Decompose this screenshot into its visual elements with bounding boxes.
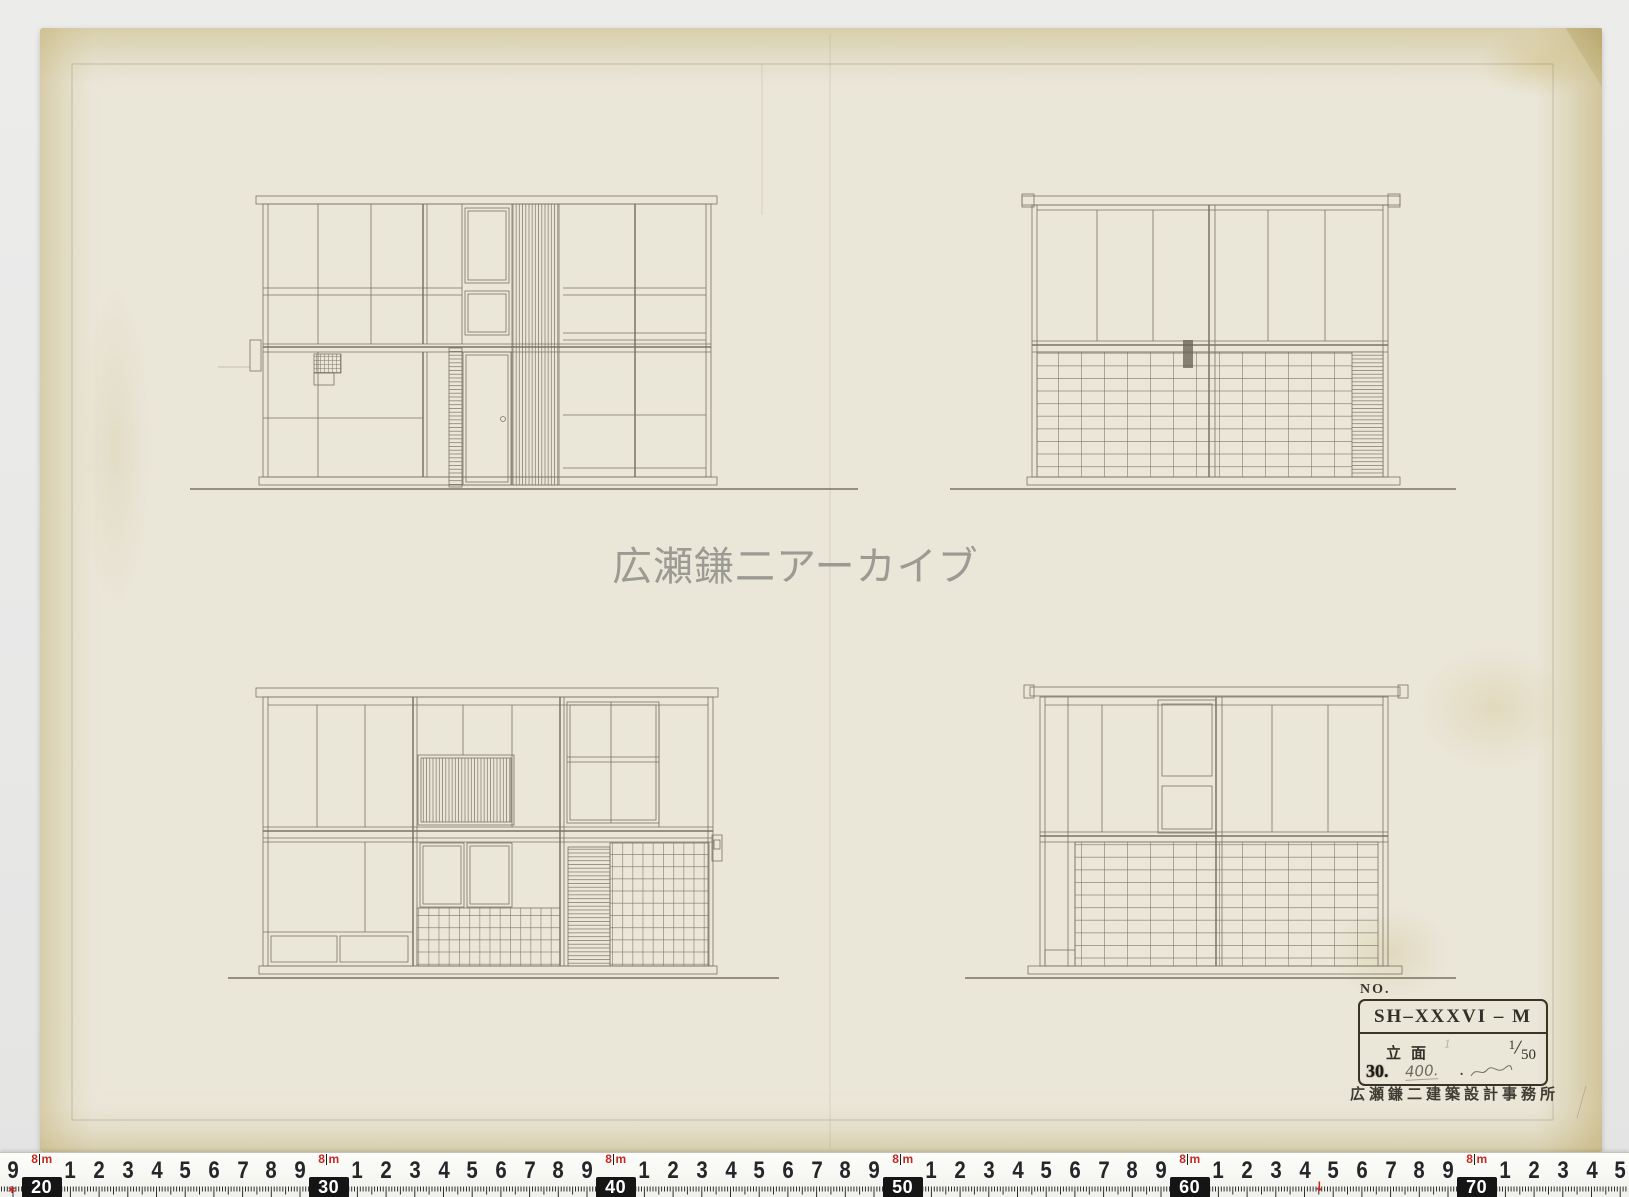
ruler-decade-number: 30 [309, 1177, 349, 1197]
ruler-digit: 6 [779, 1158, 796, 1184]
ruler-digit: 7 [234, 1158, 251, 1184]
ruler-digit: 2 [1239, 1158, 1256, 1184]
ruler-digit: 5 [464, 1158, 481, 1184]
ruler-digit: 4 [435, 1158, 452, 1184]
drawing-type-label: 立面 [1386, 1042, 1436, 1063]
ruler-arrow-marker: ↓ [1314, 1180, 1325, 1195]
ruler-ticks [0, 1186, 1629, 1197]
meter-label: 8m [596, 1153, 636, 1165]
pencil-mark: 1 [1444, 1036, 1451, 1052]
meter-label: 8m [1170, 1153, 1210, 1165]
ruler-digit: 3 [980, 1158, 997, 1184]
elevation-bottom-right [965, 685, 1456, 978]
scale-denominator: 50 [1521, 1047, 1536, 1063]
ruler-digit: 2 [378, 1158, 395, 1184]
ruler-digit: 4 [722, 1158, 739, 1184]
ruler-digit: 9 [292, 1158, 309, 1184]
ruler-digit: 2 [91, 1158, 108, 1184]
tile-wall [417, 908, 560, 966]
page-background: 広瀬鎌二アーカイブ NO. SH–XXXVI – M 立面 1 1/50 30.… [0, 0, 1629, 1197]
tile-wall [1075, 842, 1378, 966]
louver-panel [1352, 352, 1383, 477]
ruler-decade-30: 8m30 [309, 1153, 349, 1197]
ruler-digit: 9 [5, 1158, 22, 1184]
ruler-digit: 3 [1554, 1158, 1571, 1184]
ruler-digit: 9 [866, 1158, 883, 1184]
ruler-digit: 3 [119, 1158, 136, 1184]
ruler-digit: 3 [693, 1158, 710, 1184]
title-block-bottom-row: 30. 400. . [1366, 1062, 1542, 1080]
ruler-digit: 9 [1153, 1158, 1170, 1184]
ruler-decade-60: 8m60 [1170, 1153, 1210, 1197]
ruler-decade-number: 60 [1170, 1177, 1210, 1197]
title-block-no-label: NO. [1360, 982, 1391, 998]
title-block: SH–XXXVI – M 立面 1 1/50 30. 400. . [1358, 999, 1548, 1086]
ruler-digit: 1 [636, 1158, 653, 1184]
tape-ruler: 98m201234567898m301234567898m40123456789… [0, 1152, 1629, 1197]
ladder-strip [449, 348, 462, 487]
ruler-digit: 1 [1210, 1158, 1227, 1184]
door-knob [501, 417, 506, 422]
meter-label: 8m [1457, 1153, 1497, 1165]
ruler-decade-number: 20 [22, 1177, 62, 1197]
ruler-digit: 4 [1009, 1158, 1026, 1184]
ruler-digit: 8 [550, 1158, 567, 1184]
ruler-digit: 5 [1038, 1158, 1055, 1184]
louver-column [512, 204, 559, 485]
ruler-digit: 6 [1353, 1158, 1370, 1184]
ruler-decade-40: 8m40 [596, 1153, 636, 1197]
ruler-decade-number: 70 [1457, 1177, 1497, 1197]
ruler-decade-number: 50 [883, 1177, 923, 1197]
ruler-digit: 8 [1124, 1158, 1141, 1184]
ruler-decade-number: 40 [596, 1177, 636, 1197]
tile-wall [610, 843, 709, 966]
ruler-digit: 1 [923, 1158, 940, 1184]
ruler-digit: 2 [665, 1158, 682, 1184]
ruler-decade-20: 8m20 [22, 1153, 62, 1197]
scale-fraction: 1/50 [1509, 1036, 1536, 1061]
ruler-decade-50: 8m50 [883, 1153, 923, 1197]
stair-louver [568, 847, 610, 966]
handwritten-note: 400. [1404, 1062, 1438, 1081]
flue-block [1183, 340, 1193, 368]
ruler-digit: 8 [1411, 1158, 1428, 1184]
stacked-window [1158, 700, 1216, 833]
title-block-row: 立面 1 1/50 30. 400. . [1360, 1034, 1546, 1080]
ruler-digit: 5 [177, 1158, 194, 1184]
meter-label: 8m [883, 1153, 923, 1165]
archive-watermark: 広瀬鎌二アーカイブ [612, 542, 1032, 592]
meter-label: 8m [22, 1153, 62, 1165]
ruler-digit: 2 [1526, 1158, 1543, 1184]
ruler-digit: 5 [1612, 1158, 1629, 1184]
ruler-start-marker: * [8, 1183, 16, 1197]
ruler-digit: 6 [1066, 1158, 1083, 1184]
ruler-digit: 4 [1583, 1158, 1600, 1184]
ruler-digit: 8 [263, 1158, 280, 1184]
ruler-digit: 1 [349, 1158, 366, 1184]
meter-label: 8m [309, 1153, 349, 1165]
handwritten-scribble [1469, 1063, 1513, 1079]
ruler-digit: 1 [1497, 1158, 1514, 1184]
louver-window [421, 758, 511, 822]
ruler-digit: 6 [205, 1158, 222, 1184]
ruler-digit: 7 [1382, 1158, 1399, 1184]
ruler-digit: 7 [1095, 1158, 1112, 1184]
ruler-digit: 5 [1325, 1158, 1342, 1184]
vent-grille [314, 354, 341, 373]
elevation-top-right [950, 194, 1456, 489]
ruler-digit: 3 [1267, 1158, 1284, 1184]
ruler-digit: 2 [952, 1158, 969, 1184]
ruler-digit: 8 [837, 1158, 854, 1184]
ruler-digit: 6 [492, 1158, 509, 1184]
ruler-digit: 7 [521, 1158, 538, 1184]
office-stamp: 広瀬鎌二建築設計事務所 [1350, 1083, 1565, 1104]
elevation-bottom-left [228, 688, 779, 978]
ruler-digit: 3 [406, 1158, 423, 1184]
ruler-digit: 7 [808, 1158, 825, 1184]
sheet-number: 30. [1366, 1062, 1389, 1080]
ruler-digit: 1 [62, 1158, 79, 1184]
elevation-top-left [190, 196, 858, 489]
ink-dot: . [1460, 1064, 1464, 1080]
ruler-digit: 5 [751, 1158, 768, 1184]
ruler-decade-70: 8m70 [1457, 1153, 1497, 1197]
ruler-digit: 4 [148, 1158, 165, 1184]
entry-door [463, 352, 511, 485]
block-wall-grid [1037, 352, 1383, 477]
ruler-digit: 9 [1440, 1158, 1457, 1184]
ruler-digit: 9 [579, 1158, 596, 1184]
drawing-code: SH–XXXVI – M [1360, 1001, 1546, 1034]
ruler-digit: 4 [1296, 1158, 1313, 1184]
